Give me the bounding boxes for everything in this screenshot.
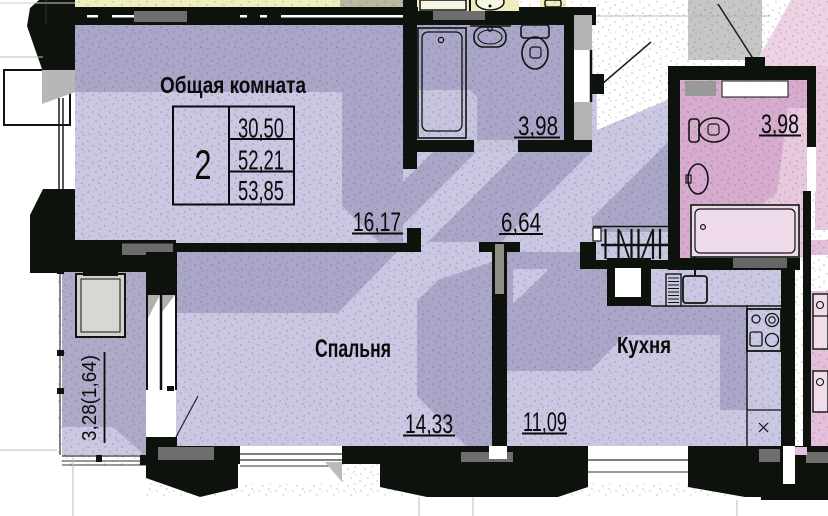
- svg-text:3,28(1,64): 3,28(1,64): [79, 355, 101, 441]
- svg-text:52,21: 52,21: [238, 145, 284, 176]
- svg-text:30,50: 30,50: [238, 113, 284, 144]
- svg-text:53,85: 53,85: [238, 175, 284, 206]
- svg-text:Кухня: Кухня: [617, 332, 671, 358]
- svg-text:2: 2: [195, 141, 212, 188]
- svg-text:Общая комната: Общая комната: [160, 72, 306, 98]
- svg-text:Спальня: Спальня: [315, 335, 391, 363]
